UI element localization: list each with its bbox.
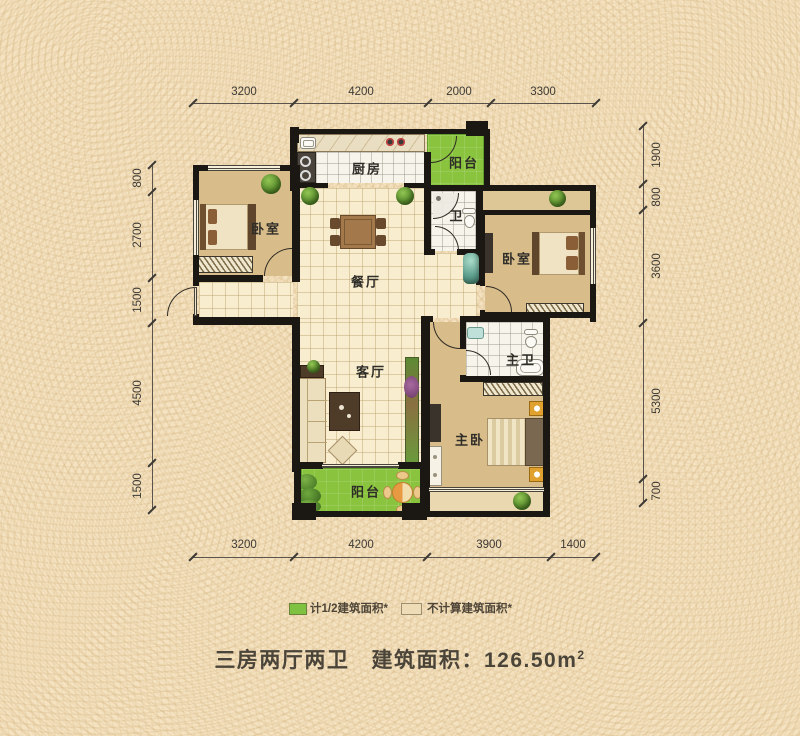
room-label-master-bath: 主卫 — [506, 350, 536, 369]
kitchen-sink-icon — [300, 137, 316, 149]
entry-floor — [199, 282, 293, 318]
floorplan-canvas: 厨房 阳台 卧室 餐厅 卫 卧室 客厅 主卫 主卧 阳台 3200 4200 2… — [0, 0, 800, 736]
dining-chair — [376, 235, 386, 246]
window — [193, 200, 199, 255]
dimension-line-bottom — [193, 557, 596, 558]
bed-headboard — [579, 232, 585, 275]
wall — [290, 129, 490, 134]
wall — [193, 317, 300, 325]
stove-ring-icon — [300, 156, 311, 167]
wall — [292, 165, 300, 282]
dim-label-right: 700 — [651, 481, 663, 500]
dining-table-inner — [344, 219, 372, 245]
bed-bedding — [525, 418, 545, 466]
bay-window — [429, 487, 544, 492]
bed-mattress — [487, 418, 527, 466]
balcony-table — [392, 482, 413, 503]
room-label-dining: 餐厅 — [351, 272, 381, 291]
kitchen-counter — [297, 134, 425, 152]
sliding-door — [322, 464, 399, 468]
washbasin-icon — [467, 327, 484, 339]
bed-pillow — [566, 236, 578, 250]
wall — [460, 322, 466, 349]
legend-label-half-area: 计1/2建筑面积* — [310, 603, 388, 615]
shower-head-icon — [436, 196, 441, 201]
stove-burner-icon — [397, 138, 405, 146]
plan-title-area: 建筑面积：126.50m — [371, 649, 577, 672]
coffee-table-decor — [339, 405, 344, 410]
window — [208, 165, 280, 171]
dim-tick — [591, 552, 600, 561]
bed — [532, 232, 585, 275]
coffee-table — [329, 392, 360, 431]
toilet-icon — [524, 329, 538, 335]
dim-label-top: 4200 — [348, 86, 374, 98]
bed-pillow — [566, 256, 578, 270]
window — [590, 228, 596, 284]
wall — [193, 275, 263, 282]
plant-icon — [396, 187, 414, 205]
room-label-bedroom-left: 卧室 — [251, 219, 281, 238]
dim-label-left: 2700 — [132, 222, 144, 248]
room-label-balcony-bottom: 阳台 — [351, 482, 381, 501]
dining-chair — [330, 218, 340, 229]
room-label-balcony-top: 阳台 — [449, 153, 479, 172]
dim-tick — [591, 98, 600, 107]
room-label-kitchen: 厨房 — [352, 159, 382, 178]
wall — [480, 210, 485, 286]
coffee-table-decor — [347, 414, 351, 418]
sofa-cushion-line — [307, 442, 327, 443]
plan-title-layout: 三房两厅两卫 — [214, 649, 349, 672]
bed-footboard — [532, 232, 539, 275]
dim-label-bottom: 4200 — [348, 539, 374, 551]
dim-label-bottom: 3200 — [231, 539, 257, 551]
plant-icon — [463, 253, 479, 284]
dresser-knob — [433, 455, 437, 459]
entry-door-leaf — [194, 287, 197, 316]
sofa-cushion-line — [307, 400, 327, 401]
plan-title: 三房两厅两卫 建筑面积：126.50m2 — [0, 644, 800, 674]
bed-pillow — [208, 209, 217, 224]
dining-table — [340, 215, 376, 249]
stove-ring-icon — [300, 170, 311, 181]
dresser-knob — [433, 473, 437, 477]
wall — [424, 185, 596, 191]
wall — [543, 318, 550, 517]
plant-icon — [307, 360, 320, 373]
dim-label-top: 3300 — [530, 86, 556, 98]
dimension-line-top — [193, 103, 596, 104]
dim-label-top: 3200 — [231, 86, 257, 98]
balcony-stool — [383, 486, 392, 499]
legend-swatch-excluded-area — [401, 603, 422, 615]
dresser — [428, 446, 442, 486]
wall — [424, 249, 435, 255]
room-label-bath: 卫 — [449, 206, 464, 225]
wall — [424, 511, 550, 517]
dim-label-bottom: 3900 — [476, 539, 502, 551]
sink-bowl — [303, 140, 314, 147]
wall — [424, 188, 431, 255]
dim-label-right: 1900 — [651, 142, 663, 168]
sofa-cushion-line — [307, 421, 327, 422]
plant-icon — [513, 492, 531, 510]
plant-icon — [301, 187, 319, 205]
plant-icon — [261, 174, 281, 194]
entry-door-arc — [167, 287, 196, 316]
bed-pillow — [208, 230, 217, 245]
legend-label-excluded-area: 不计算建筑面积* — [427, 603, 512, 615]
wall — [484, 129, 490, 188]
stove-burner-icon — [386, 138, 394, 146]
wall-column — [292, 503, 316, 520]
dim-label-left: 800 — [132, 168, 144, 187]
wardrobe — [483, 382, 543, 396]
dim-tick — [147, 505, 156, 514]
dim-label-bottom: 1400 — [560, 539, 586, 551]
dim-label-right: 3600 — [651, 253, 663, 279]
wall — [424, 152, 431, 188]
plan-title-area-sup: 2 — [577, 648, 585, 662]
dining-chair — [376, 218, 386, 229]
bed-headboard — [200, 204, 206, 250]
dim-label-left: 1500 — [132, 473, 144, 499]
wardrobe — [198, 256, 253, 273]
plant-icon — [549, 190, 566, 207]
room-label-living: 客厅 — [356, 362, 386, 381]
dim-label-right: 800 — [651, 187, 663, 206]
wall — [460, 376, 550, 382]
dining-set — [330, 214, 386, 250]
room-label-master-bedroom: 主卧 — [455, 430, 485, 449]
legend-swatch-half-area — [289, 603, 307, 615]
dining-chair — [330, 235, 340, 246]
plant-stand — [405, 357, 419, 463]
room-label-bedroom-right: 卧室 — [502, 249, 532, 268]
flower-icon — [404, 376, 419, 398]
tv-cabinet — [485, 233, 493, 273]
dining-floor — [297, 188, 424, 322]
bed — [200, 204, 256, 250]
dim-label-right: 5300 — [651, 388, 663, 414]
balcony-stool — [396, 471, 409, 480]
dim-label-top: 2000 — [446, 86, 472, 98]
ac-ledge-floor — [483, 191, 590, 211]
wall — [460, 316, 550, 322]
sofa — [298, 378, 326, 463]
dim-label-left: 4500 — [132, 380, 144, 406]
dimension-line-left — [152, 165, 153, 510]
tv-cabinet — [429, 404, 441, 442]
wall — [480, 210, 596, 215]
dim-label-left: 1500 — [132, 287, 144, 313]
dim-tick — [638, 498, 647, 507]
wall — [292, 317, 300, 472]
plan-title-spacer — [357, 649, 364, 672]
